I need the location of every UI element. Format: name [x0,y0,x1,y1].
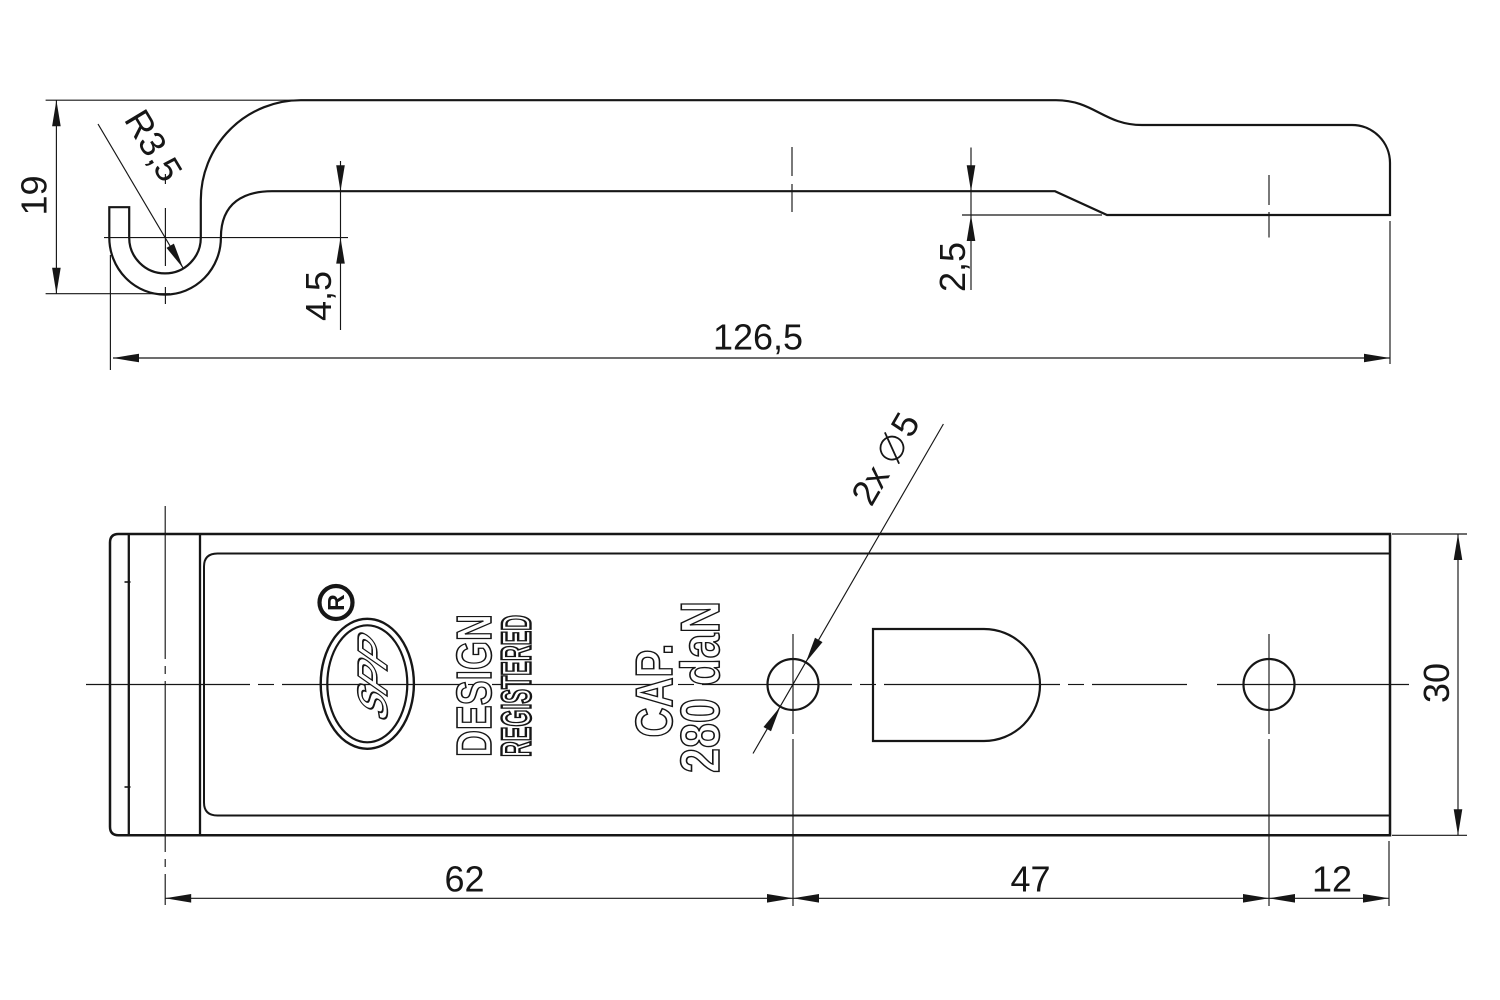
svg-text:47: 47 [1010,859,1050,900]
svg-text:2,5: 2,5 [932,242,973,292]
svg-text:280 daN: 280 daN [669,601,731,773]
svg-text:126,5: 126,5 [713,317,803,358]
svg-text:62: 62 [444,859,484,900]
svg-text:12: 12 [1312,859,1352,900]
svg-text:19: 19 [14,175,55,215]
svg-text:4,5: 4,5 [298,271,339,321]
svg-text:REGISTERED: REGISTERED [493,615,540,757]
svg-text:30: 30 [1416,663,1457,703]
svg-text:R: R [323,594,349,611]
